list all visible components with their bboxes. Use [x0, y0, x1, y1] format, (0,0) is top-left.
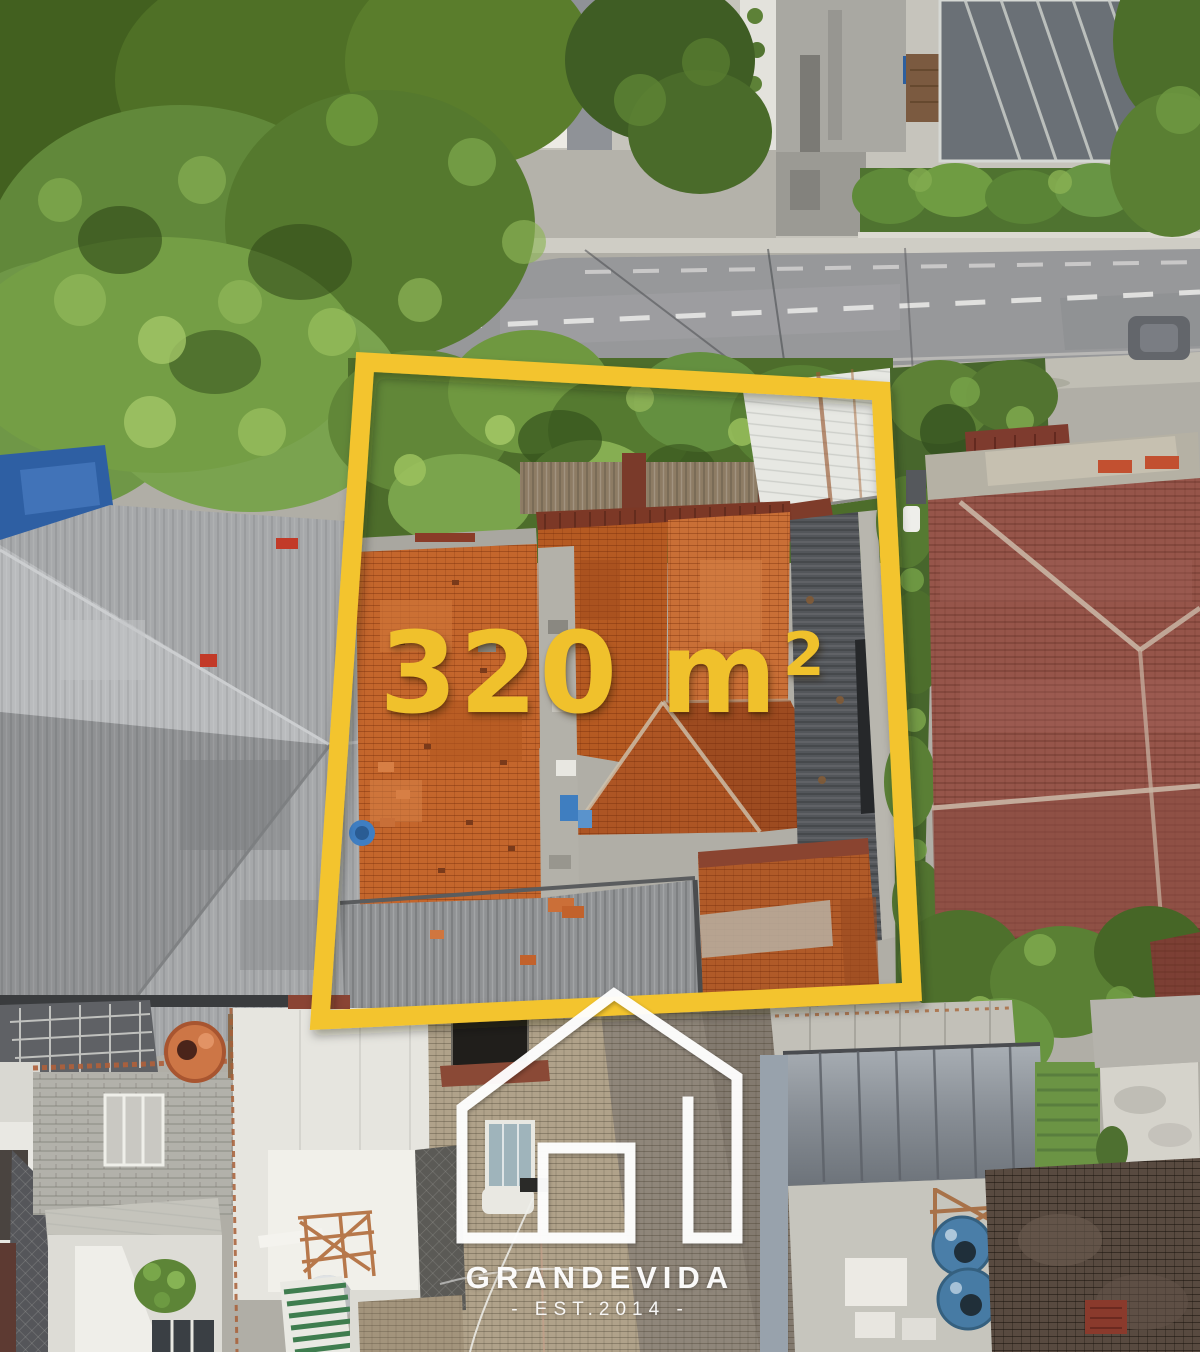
bottom-buildings — [0, 995, 1200, 1352]
property-interior — [328, 330, 906, 1014]
gray-metal-roof — [0, 445, 360, 1068]
right-neighbour — [876, 358, 1200, 1082]
aerial-property-photo: 320 m2 GRANDEVIDA - EST.2014 - — [0, 0, 1200, 1352]
aerial-photo-scene — [0, 0, 1200, 1352]
